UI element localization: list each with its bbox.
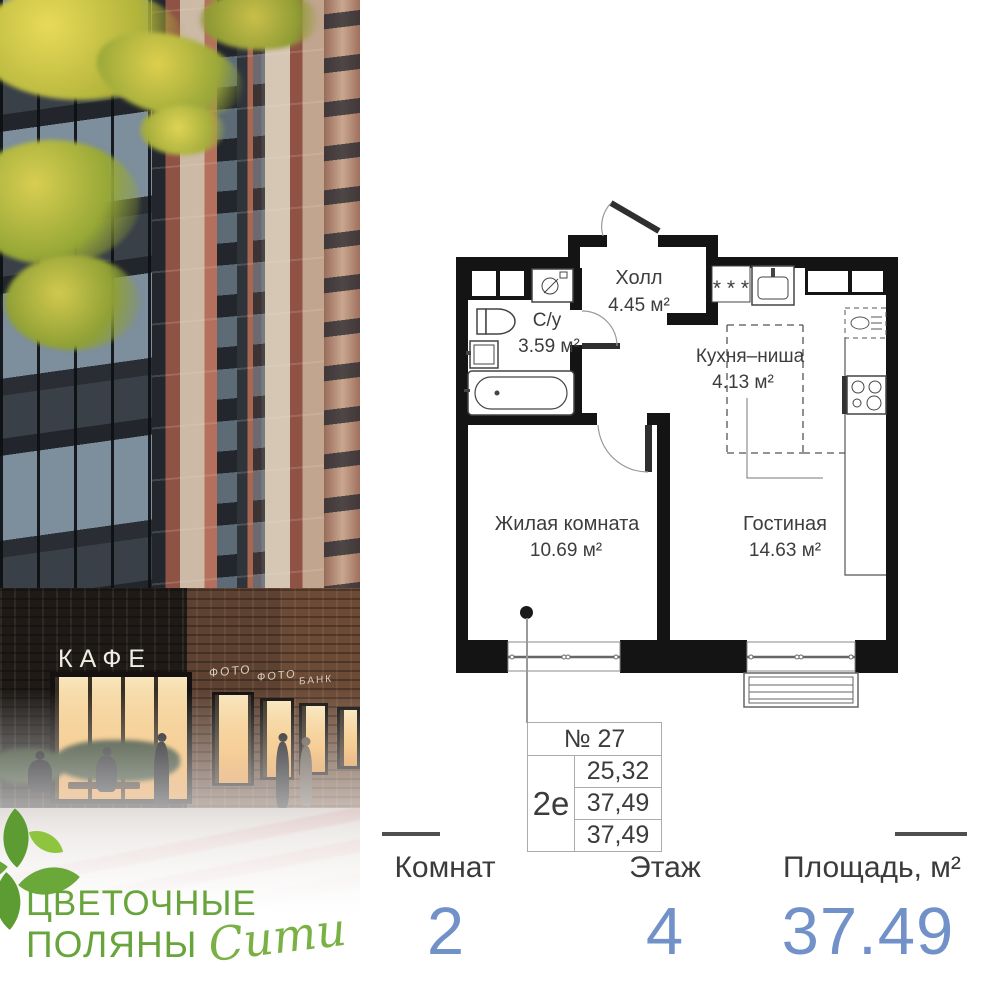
entrance-door [602,203,659,236]
stat-value-area: 37.49 [718,893,1000,970]
brand-name-line2: ПОЛЯНЫ [26,924,197,966]
room-label-hall: Холл [615,267,662,289]
vent-symbol: * * * [713,277,749,300]
toilet-icon [477,309,515,334]
dishwasher-icon [845,308,886,338]
floor-plan: * * * [456,195,898,725]
stove-icon [842,376,886,414]
leaf [29,825,63,859]
table-value: 37,49 [575,788,661,820]
room-area-bathroom: 3.59 м² [518,336,580,357]
sink-icon [466,341,498,368]
table-value: 37,49 [575,820,661,851]
room-label-bathroom: С/у [533,310,562,331]
area-leader-line [747,398,823,478]
autumn-leaves [5,255,140,350]
room-area-hall: 4.45 м² [608,295,670,316]
bathroom-door [582,311,620,349]
bathtub-icon [464,371,574,415]
washing-machine-icon [532,269,573,302]
stat-label-area: Площадь, м² [752,851,992,885]
window-living-room [508,642,620,671]
stat-label-floor: Этаж [545,851,785,885]
stat-label-rooms: Комнат [325,851,565,885]
apartment-type: 2е [528,756,575,851]
room-area-living: 10.69 м² [530,540,602,561]
cafe-sign: КАФЕ [58,645,152,674]
room-area-kitchen: 4.13 м² [712,372,774,393]
kitchen-counter [845,338,886,575]
window-lounge [747,642,855,671]
kitchen-sink-icon [752,266,794,305]
table-value: 25,32 [575,756,661,788]
autumn-leaves [140,105,225,155]
divider-dash-right [895,832,967,836]
room-area-lounge: 14.63 м² [749,540,821,561]
living-room-door [598,425,652,472]
room-label-living: Жилая комната [495,513,640,535]
divider-dash-left [382,832,440,836]
listing-card: КАФЕ ФОТО ФОТО БАНК ЦВЕТОЧНЫЕ ПОЛЯНЫ Сит… [0,0,1000,1000]
apartment-number: № 27 [528,723,661,756]
balcony [744,673,858,707]
room-label-lounge: Гостиная [743,513,827,535]
apartment-info-table: № 27 2е 25,32 37,49 37,49 [527,722,662,852]
room-label-kitchen: Кухня–ниша [696,346,805,367]
plan-leader-line [526,618,528,723]
